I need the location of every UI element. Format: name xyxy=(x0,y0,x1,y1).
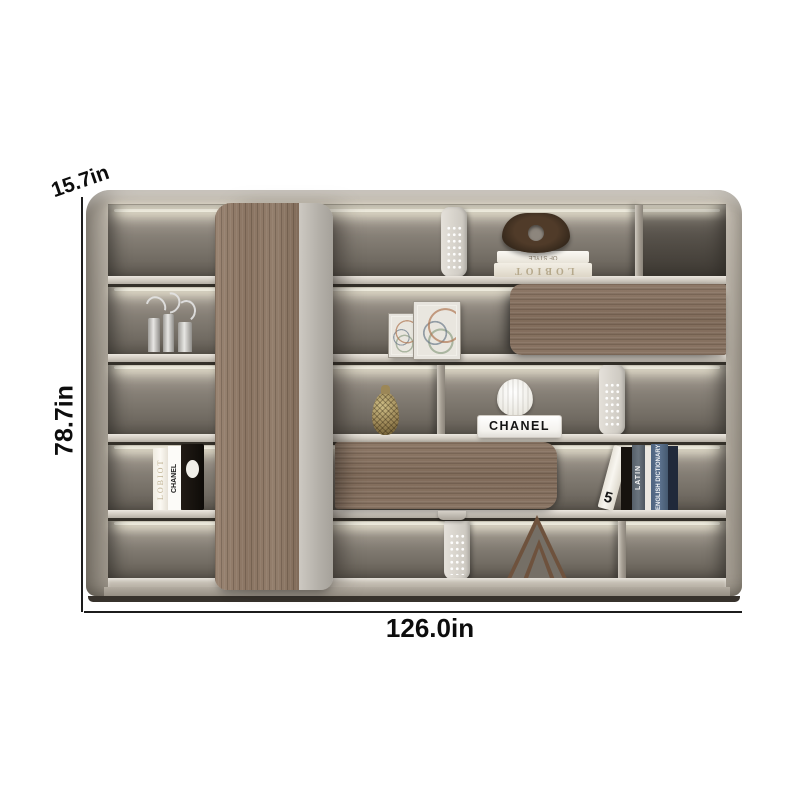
white-vase-decor xyxy=(497,379,533,416)
drawer-front xyxy=(335,442,557,509)
vertical-divider-row5 xyxy=(618,518,626,580)
tall-cabinet-door xyxy=(215,203,333,590)
sculpture-hole xyxy=(528,225,544,241)
bookcase-plinth-shadow xyxy=(88,596,740,602)
height-dimension-label: 78.7in xyxy=(51,358,80,484)
silver-vases-decor xyxy=(146,294,198,352)
stacked-book-bottom: LOBIOT xyxy=(494,263,592,277)
left-book-1-label: LOBIOT xyxy=(156,448,165,510)
shelf-4 xyxy=(108,510,726,521)
frame-artwork xyxy=(392,317,413,354)
silver-vase xyxy=(163,314,174,352)
perforated-divider-row3 xyxy=(599,364,625,435)
wire-pyramid-decor xyxy=(504,515,570,585)
book-cover-oval-logo xyxy=(186,460,199,478)
height-dimension-line xyxy=(81,197,83,612)
compartment-row-3 xyxy=(108,362,726,434)
bookcase-floor xyxy=(108,578,726,587)
width-dimension-label: 126.0in xyxy=(330,613,530,644)
tall-door-gray-edge xyxy=(299,203,333,590)
black-chanel-book xyxy=(181,444,204,510)
latin-book-label: LATIN xyxy=(635,445,642,510)
gold-vase-decor xyxy=(372,392,399,435)
vertical-divider-row1 xyxy=(635,205,643,284)
product-image-canvas: CHANEL · THE VOCABULARY OF STYLE LOBIOT … xyxy=(0,0,800,800)
perforated-divider-row5 xyxy=(444,516,470,580)
black-book-spine xyxy=(621,447,632,510)
stacked-book-top-label: CHANEL · THE VOCABULARY OF STYLE xyxy=(497,251,589,263)
left-book-spine-2: CHANEL xyxy=(168,446,181,510)
dictionary-book-label: ENGLISH DICTIONARY xyxy=(656,444,663,510)
compartment-row-5 xyxy=(108,518,726,578)
bookcase-base xyxy=(104,587,730,596)
drawer-handle xyxy=(438,511,466,520)
left-book-2-label: CHANEL xyxy=(171,446,178,510)
silver-vase xyxy=(178,322,192,352)
tall-door-wood-panel xyxy=(215,203,299,590)
chanel-tray: CHANEL xyxy=(477,415,562,438)
perforated-divider-row1 xyxy=(441,207,467,277)
leaning-book-number-label: 5 xyxy=(598,488,618,509)
stacked-book-bottom-label: LOBIOT xyxy=(511,263,574,277)
latin-book-spine: LATIN xyxy=(632,445,645,510)
abstract-sculpture-decor xyxy=(502,213,570,253)
picture-frame-large xyxy=(414,302,460,359)
stacked-book-top: CHANEL · THE VOCABULARY OF STYLE xyxy=(497,251,589,263)
chanel-tray-label: CHANEL xyxy=(489,419,550,433)
frame-artwork xyxy=(418,306,456,355)
silver-vase xyxy=(148,318,160,352)
dictionary-book-spine: ENGLISH DICTIONARY xyxy=(651,444,668,510)
upper-cabinet-door xyxy=(510,284,726,355)
vertical-divider-row3 xyxy=(437,362,445,442)
dark-compartment-top-right xyxy=(643,206,726,276)
picture-frame-small xyxy=(389,314,416,357)
navy-book-spine xyxy=(668,446,678,510)
compartment-row-1 xyxy=(108,205,726,276)
leaning-book: 5 xyxy=(589,447,625,511)
left-book-spine-1: LOBIOT xyxy=(153,448,168,510)
